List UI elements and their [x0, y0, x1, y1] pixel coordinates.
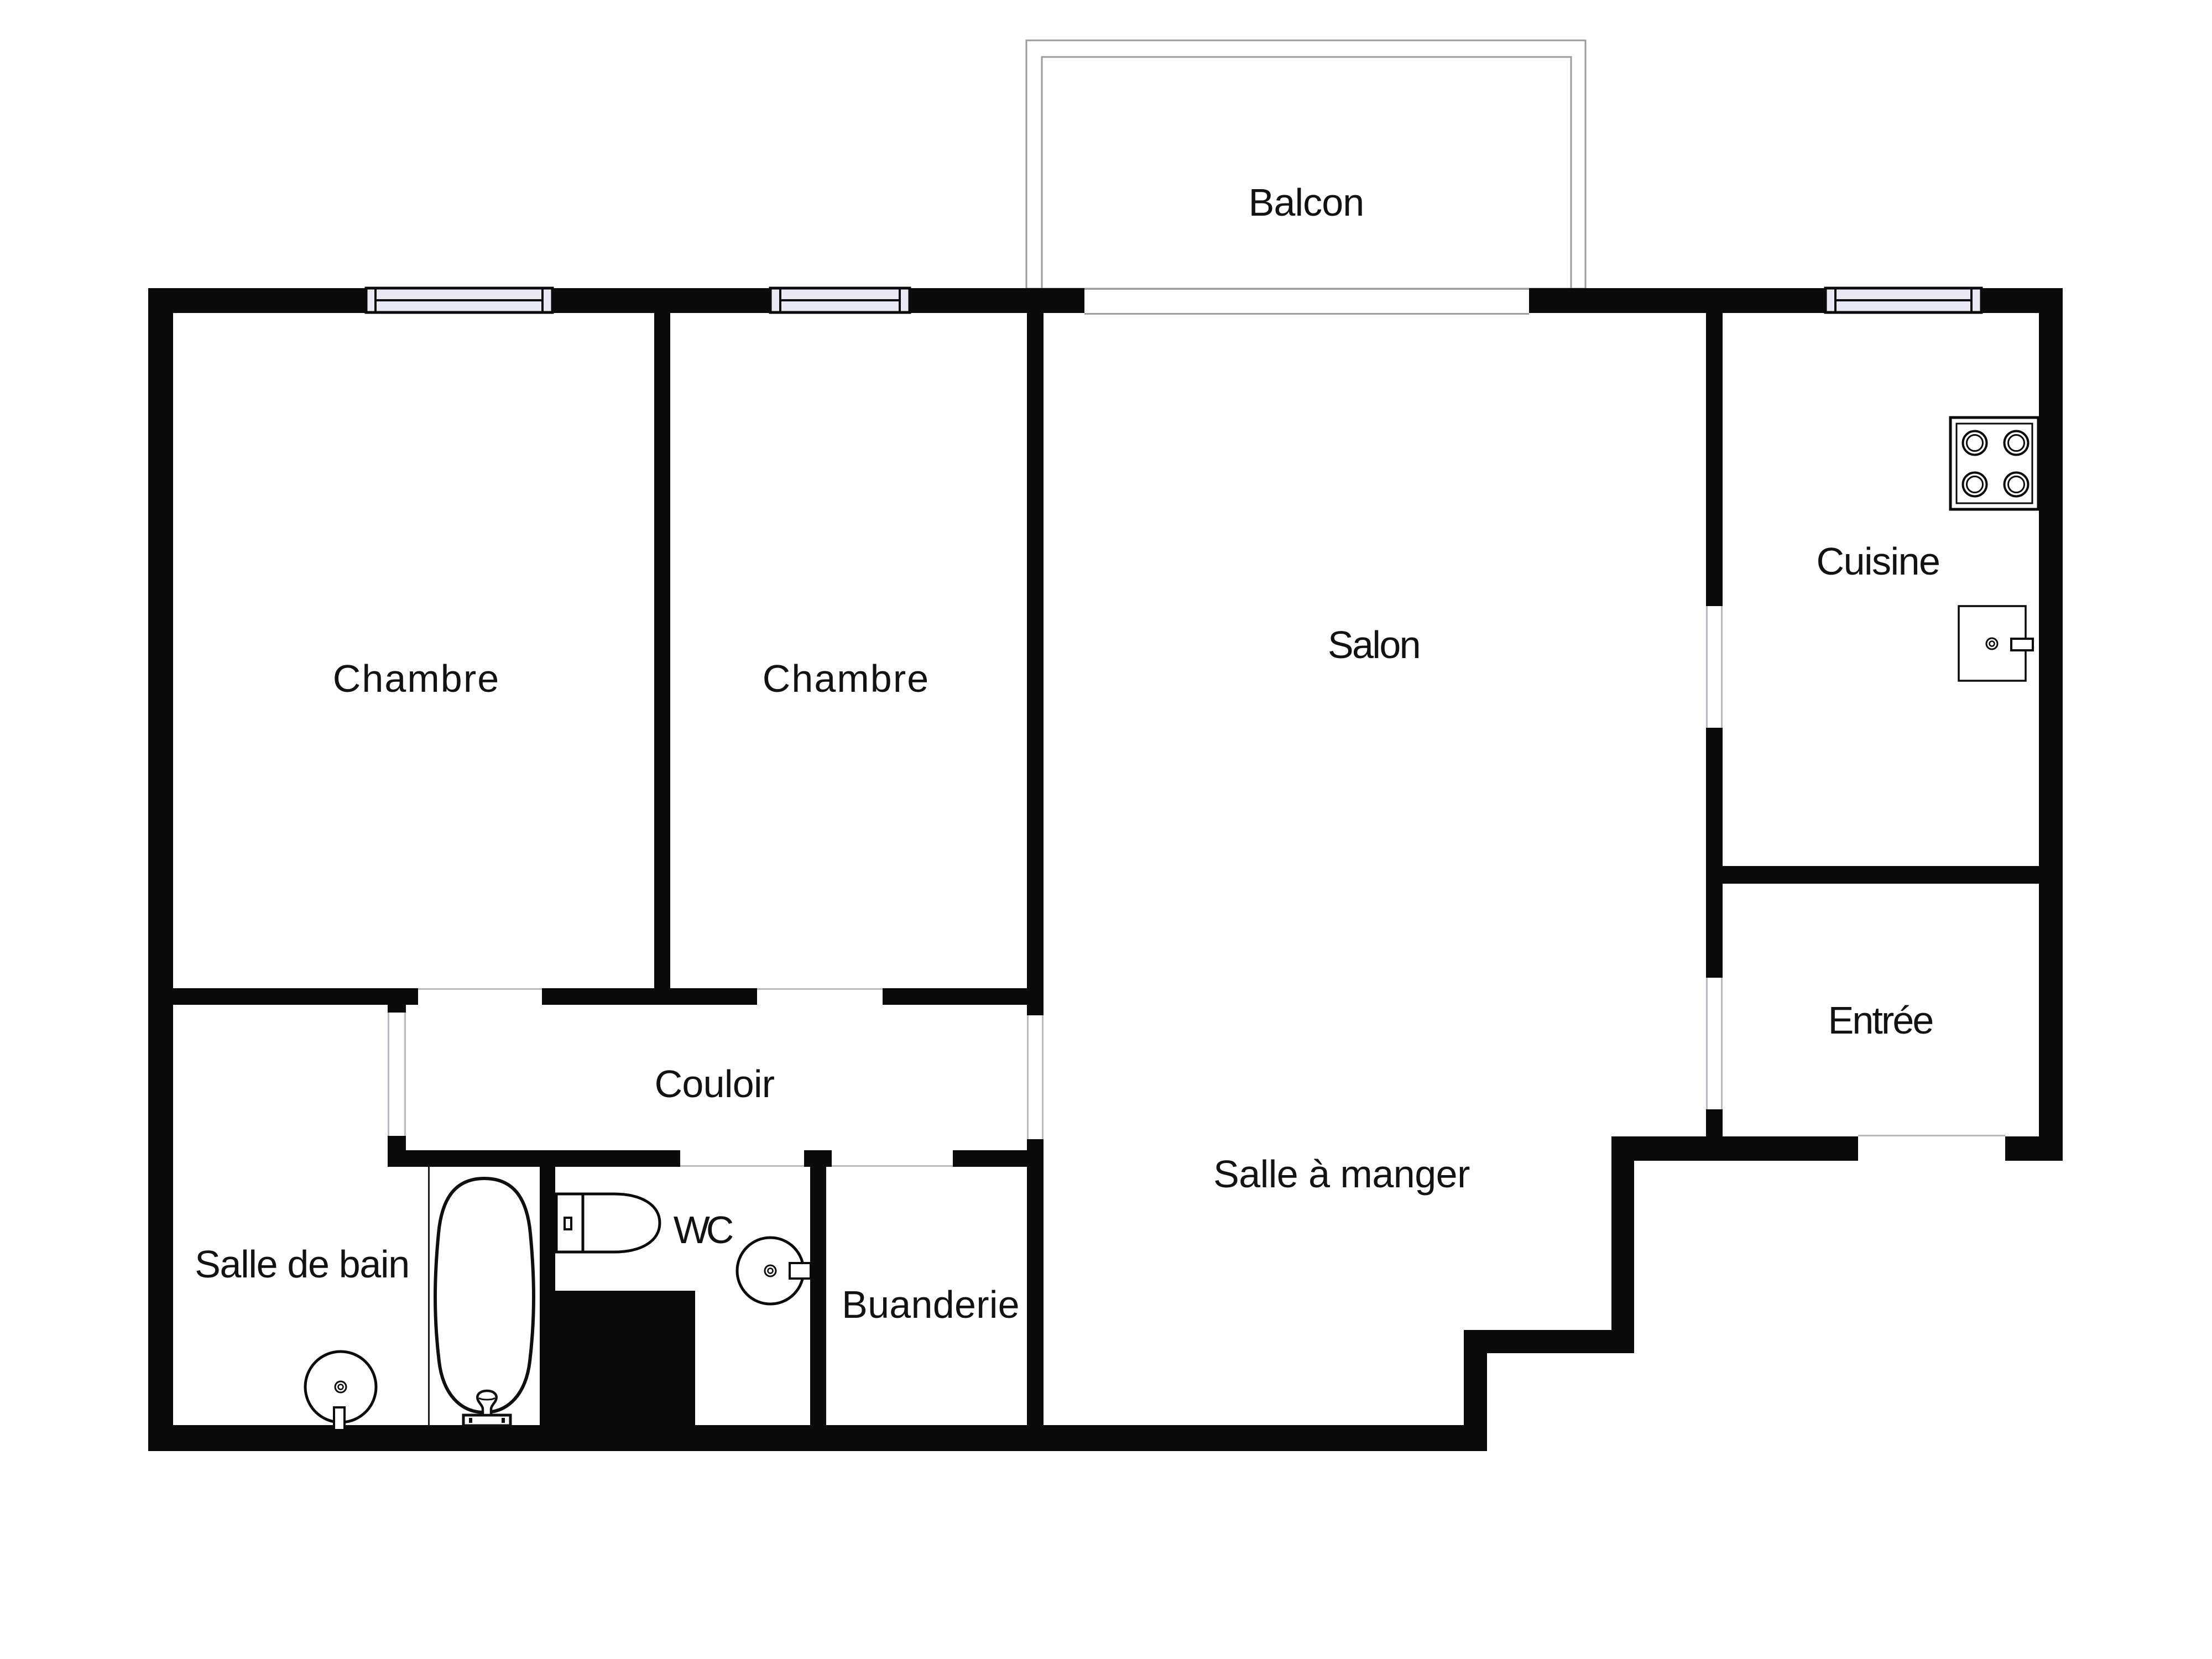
svg-text:Entrée: Entrée [1828, 999, 1933, 1042]
svg-text:Couloir: Couloir [655, 1062, 775, 1105]
svg-text:WC: WC [674, 1208, 733, 1251]
svg-text:Salle de bain: Salle de bain [195, 1243, 409, 1286]
svg-text:Salon: Salon [1328, 623, 1420, 666]
svg-text:Chambre: Chambre [763, 657, 930, 700]
svg-text:Buanderie: Buanderie [842, 1283, 1020, 1326]
svg-text:Chambre: Chambre [333, 657, 500, 700]
svg-text:Balcon: Balcon [1249, 181, 1364, 224]
svg-text:Cuisine: Cuisine [1817, 540, 1940, 583]
svg-text:Salle à manger: Salle à manger [1213, 1152, 1470, 1196]
